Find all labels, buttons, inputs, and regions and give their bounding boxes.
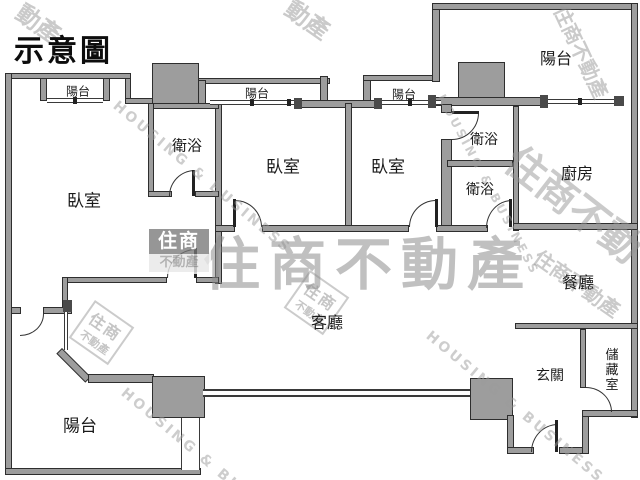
room-label-dining: 餐廳 — [562, 269, 594, 293]
wall — [198, 80, 206, 104]
wall — [515, 323, 638, 329]
wall — [56, 348, 91, 383]
room-label-balcony-top-left: 陽台 — [66, 83, 90, 100]
watermark-logo-bottom: 不動產 — [149, 254, 209, 272]
room-label-foyer: 玄關 — [536, 365, 564, 385]
wall — [40, 78, 47, 101]
room-label-kitchen: 廚房 — [561, 160, 593, 184]
room-label-balcony-mid-2: 陽台 — [392, 86, 416, 103]
wall — [148, 103, 219, 109]
pillar — [152, 63, 199, 104]
wall — [103, 78, 110, 101]
wall-cap — [540, 95, 548, 108]
wall — [432, 3, 440, 82]
room-label-bedroom2: 臥室 — [266, 153, 300, 178]
wall-cap — [428, 95, 436, 108]
room-label-storage: 儲藏室 — [601, 348, 620, 393]
room-label-living: 客廳 — [311, 309, 343, 333]
watermark-logo-top: 住商 — [149, 229, 209, 254]
wall — [300, 100, 378, 108]
room-label-balcony-bottom: 陽台 — [63, 412, 97, 437]
wall — [507, 447, 534, 454]
wall — [5, 73, 12, 475]
watermark-brand-logo: 住商 不動產 — [147, 227, 211, 274]
watermark-diagonal-text: HOUSING & BUSINESS — [118, 385, 303, 480]
wall-cap — [374, 98, 382, 109]
pillar — [458, 62, 505, 102]
room-label-bath3: 衛浴 — [466, 179, 494, 199]
watermark-mini-logo: 住商 不動產 — [69, 300, 135, 365]
watermark-stamp: 動產 — [279, 0, 338, 46]
wall — [5, 468, 201, 475]
room-label-bath2: 衛浴 — [470, 129, 498, 149]
room-label-balcony-top-right: 陽台 — [540, 45, 572, 69]
wall-cap — [63, 300, 72, 312]
wall-cap — [614, 96, 624, 106]
wall — [62, 277, 167, 283]
window-tick — [287, 99, 291, 106]
page-title: 示意圖 — [14, 26, 113, 70]
room-label-balcony-mid-1: 陽台 — [245, 85, 269, 102]
wall — [432, 3, 638, 10]
wall-cap — [294, 98, 302, 109]
window — [64, 312, 68, 350]
wall — [345, 103, 352, 232]
watermark-brand-text: 住商不動產 — [203, 219, 533, 301]
wall — [5, 73, 131, 79]
wall — [363, 75, 435, 81]
floor-plan: 住商不動產 住商 不動產 HOUSING & BUSINESS HOUSING … — [0, 0, 640, 480]
room-label-bedroom1: 臥室 — [67, 187, 101, 212]
window — [203, 389, 470, 397]
window — [548, 99, 616, 104]
wall — [582, 415, 589, 454]
wall — [198, 78, 330, 84]
wall — [148, 103, 154, 197]
wall — [88, 374, 154, 383]
wall — [580, 329, 586, 388]
door-arc-balcony — [20, 314, 44, 336]
room-label-bath1: 衛浴 — [172, 135, 202, 156]
window-tick — [578, 98, 582, 105]
room-label-bedroom3: 臥室 — [371, 153, 405, 178]
